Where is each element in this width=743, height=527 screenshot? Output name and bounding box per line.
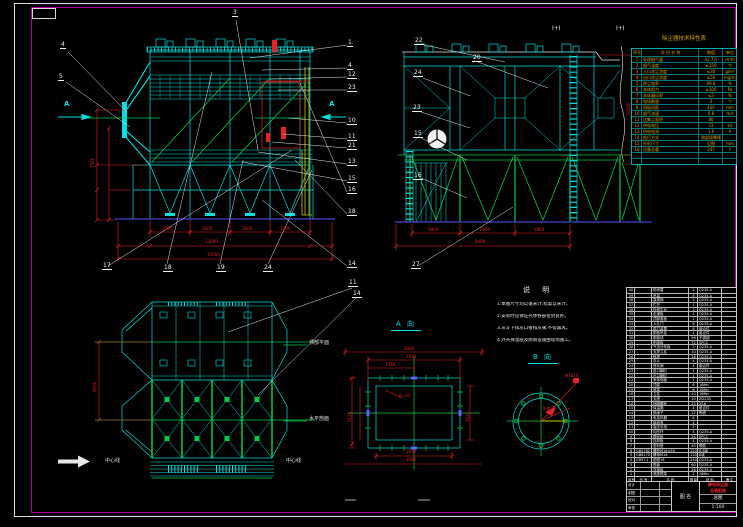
elevation-marker: Ⅰ+Ⅰ [616,26,625,32]
spec-table-rows: 1 处理烟气量 42.7万 m³/h 2 烟气温度 ≤150 ℃ 3 入口含尘浓… [632,56,736,164]
section-b-label: B 向 [528,354,558,364]
dim-text: 2800 [480,228,490,232]
plan-view [95,302,315,478]
spec-table: 序号 项 目 名 称 数值 单位 1 处理烟气量 42.7万 m³/h 2 烟气… [631,48,737,165]
dim-text: 2830 [406,450,416,454]
bom-cell-material: 16Mn [698,472,722,476]
signature-date [660,490,671,497]
dim-text: 3000 [202,227,212,231]
balloon: 20 [472,55,482,62]
doc-type: 总图 [700,495,736,504]
balloon: 23 [347,85,357,92]
spec-table-row [632,158,736,164]
section-b-view [507,378,579,456]
bom-cell-code [635,472,652,476]
dim-text: 1624 [466,412,470,422]
bom-rows: 40 防雨罩 2 Q235-A 39 吊耳 8 Q235-A 38 直爬梯 2 … [627,288,736,476]
spec-cell-value [699,159,723,164]
balloon: 12 [347,72,357,79]
spec-col-header: 序号 [632,49,642,56]
dim-text: 15000 [207,253,220,257]
balloon: 1 [347,40,353,47]
balloon: 16 [347,187,357,194]
balloon: 16 [413,173,423,180]
notes-title: 说 明 [523,285,627,295]
balloon: 4 [347,63,353,70]
signature-date [660,482,671,489]
bom-cell-remark [722,472,736,476]
bom-cell-qty: 1 [689,472,698,476]
dim-text: 7500 [91,158,95,168]
balloon: 24 [413,70,423,77]
bom-row: 1 底座框架 1 16Mn [627,471,736,476]
leader-lines [66,20,548,395]
note-item: 4.外壳保温层及防雨设施由现场施工。 [497,338,627,343]
balloon: 27 [411,262,421,269]
view-a-letter: A [64,101,69,108]
dim-text: 9000 [93,382,97,392]
signature-label: 审核 [627,505,641,512]
centerline-label: 中心线 [105,459,120,464]
dim-text: 3000 [242,227,252,231]
signature-label: 制图 [627,490,641,497]
dim-text: δ=10 [399,394,410,398]
balloon: 11 [347,134,357,141]
dim-text: 3000 [280,227,290,231]
signature-date [660,497,671,504]
dim-text: 3080 [406,458,416,462]
signature-row: 审核 [627,505,671,512]
signature-label: 校对 [627,497,641,504]
dim-text: 2800 [534,228,544,232]
balloon: 21 [347,143,357,150]
signature-value [641,482,660,489]
dim-text: 2800 [428,228,438,232]
balloon: 14 [352,291,362,298]
dim-text: Φ1020 [565,374,578,378]
balloon: 18 [163,265,173,272]
signature-row: 设计 [627,482,671,490]
view-a-letter: A [329,101,334,108]
bom-table: 40 防雨罩 2 Q235-A 39 吊耳 8 Q235-A 38 直爬梯 2 … [626,287,737,484]
title-block-right: 静电除尘器 总装配图 总图 1:100 [700,482,736,511]
balloon: 15 [413,131,423,138]
dim-text: 3080 [404,347,414,351]
balloon: 15 [347,176,357,183]
spec-table-header: 序号 项 目 名 称 数值 单位 [632,49,736,56]
notes-block: 说 明 1.本图尺寸均以毫米计,标高以米计。2.安装时应保证壳体各部密封良好。3… [497,285,627,350]
side-elevation-view [398,44,648,222]
drawing-title-stamp: 静电除尘器 总装配图 [700,482,736,495]
balloon: 10 [347,118,357,125]
section-a-label: A 向 [391,321,421,331]
dim-text: 2124 [348,412,352,422]
balloon: 13 [347,159,357,166]
drawing-scale: 1:100 [700,504,736,511]
signature-value [641,497,660,504]
balloon: 22 [414,38,424,45]
balloon: 24 [263,265,273,272]
spec-col-header: 数值 [699,49,723,56]
spec-col-header: 单位 [723,49,736,56]
plan-bottom-label: 水平剖面 [309,417,329,422]
balloon: 23 [412,105,422,112]
signature-date [660,505,671,512]
balloon: 3 [232,10,238,17]
note-item: 1.本图尺寸均以毫米计,标高以米计。 [497,302,627,307]
spec-cell-name [642,159,699,164]
signature-label: 设计 [627,482,641,489]
side-view-dimensions [394,53,634,250]
signature-row: 制图 [627,490,671,498]
balloon: 4 [60,42,66,49]
title-block-middle: 图 名 [672,482,700,511]
cad-drawing-canvas: 4 5 3 1 4 12 23 10 11 21 13 15 16 18 14 … [0,0,743,527]
bom-cell-name: 底座框架 [652,472,689,476]
spec-col-header: 项 目 名 称 [642,49,699,56]
note-item: 2.安装时应保证壳体各部密封良好。 [497,314,627,319]
balloon: 19 [216,265,226,272]
dim-text: 3000 [162,227,172,231]
balloon: 5 [58,74,64,81]
ground-line [115,219,652,222]
signature-value [641,490,660,497]
dim-text: 8-Φ18 [543,407,555,411]
note-item: 3.灰斗下排灰口接排灰阀,不得漏风。 [497,326,627,331]
front-elevation-view [88,39,313,219]
dim-text: 1330 [385,363,395,367]
spec-table-title: 除尘器技术特性表 [631,36,737,42]
dim-text: 13000 [205,240,218,244]
dim-text: 2830 [406,355,416,359]
flow-direction-arrow [58,456,90,468]
balloon: 11 [348,280,358,287]
balloon: 14 [347,261,357,268]
spec-cell-no [632,159,642,164]
centerline-label: 中心线 [286,459,301,464]
signature-value [641,505,660,512]
title-block-signatures: 设计 制图 校对 审核 [627,482,672,511]
notes-list: 1.本图尺寸均以毫米计,标高以米计。2.安装时应保证壳体各部密封良好。3.灰斗下… [497,302,627,343]
signature-row: 校对 [627,497,671,505]
title-block: 设计 制图 校对 审核 图 名 静电除尘器 总装配图 总图 [626,481,737,512]
elevation-marker: Ⅰ+Ⅰ [552,26,561,32]
stamp-line-2: 总装配图 [700,488,736,494]
balloon: 17 [102,263,112,270]
spec-cell-unit [723,159,736,164]
bom-cell-no: 1 [627,472,635,476]
dim-text: 8400 [475,240,485,244]
plan-top-label: 顶部平面 [309,341,329,346]
balloon: 18 [347,209,357,216]
